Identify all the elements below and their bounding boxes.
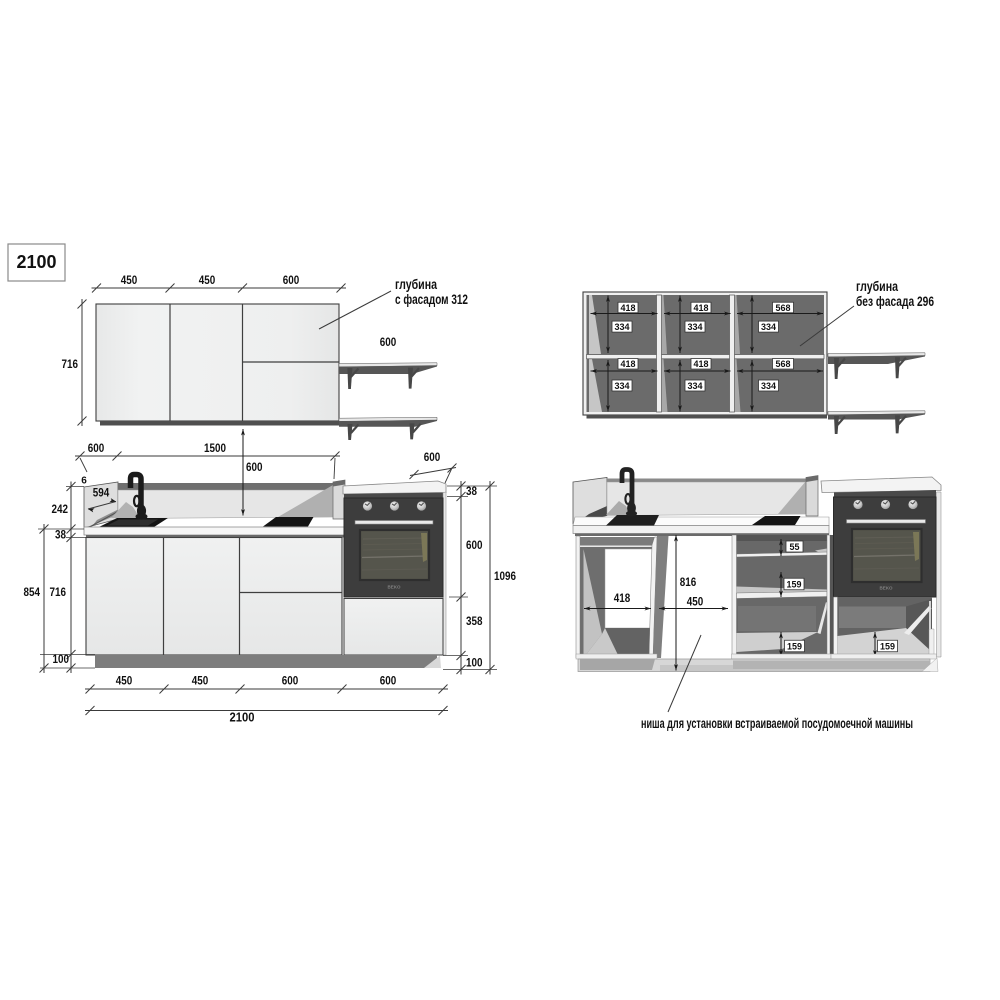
svg-text:334: 334 [688,381,704,392]
svg-text:600: 600 [380,674,397,688]
svg-text:450: 450 [116,674,133,688]
svg-text:100: 100 [466,656,483,670]
svg-text:594: 594 [93,486,110,500]
svg-text:ниша для установки встраиваемо: ниша для установки встраиваемой посудомо… [641,716,913,731]
svg-text:600: 600 [282,674,299,688]
svg-text:334: 334 [761,322,777,333]
svg-text:600: 600 [246,460,263,474]
svg-text:568: 568 [776,359,791,370]
svg-text:334: 334 [615,322,631,333]
svg-text:418: 418 [621,303,636,314]
svg-text:55: 55 [790,542,801,553]
svg-text:38: 38 [466,484,477,498]
svg-text:334: 334 [688,322,704,333]
svg-text:100: 100 [53,652,70,666]
svg-text:2100: 2100 [230,711,255,725]
svg-text:418: 418 [621,359,636,370]
svg-text:600: 600 [424,450,441,464]
svg-text:418: 418 [694,359,709,370]
svg-text:450: 450 [121,273,138,287]
svg-text:600: 600 [88,441,105,455]
svg-text:600: 600 [466,538,483,552]
svg-text:450: 450 [192,674,209,688]
svg-text:358: 358 [466,614,483,628]
svg-text:2100: 2100 [17,251,57,272]
svg-text:716: 716 [50,585,67,599]
svg-text:418: 418 [694,303,709,314]
svg-text:159: 159 [787,641,802,652]
svg-text:334: 334 [615,381,631,392]
svg-text:6: 6 [81,476,87,487]
svg-text:568: 568 [776,303,791,314]
svg-text:600: 600 [380,335,397,349]
svg-text:38: 38 [55,528,66,542]
svg-text:без фасада 296: без фасада 296 [856,294,934,309]
svg-text:BEKO: BEKO [879,586,893,591]
svg-text:450: 450 [199,273,216,287]
svg-text:418: 418 [614,591,631,605]
svg-text:глубина: глубина [856,279,898,294]
svg-text:159: 159 [787,579,802,590]
svg-text:1096: 1096 [494,569,516,583]
svg-text:600: 600 [283,273,300,287]
svg-text:159: 159 [880,641,895,652]
svg-text:с фасадом 312: с фасадом 312 [395,292,468,307]
svg-text:глубина: глубина [395,277,437,292]
svg-text:1500: 1500 [204,441,226,455]
svg-text:716: 716 [62,357,79,371]
svg-text:334: 334 [761,381,777,392]
svg-text:242: 242 [52,502,69,516]
svg-text:BEKO: BEKO [387,585,401,590]
svg-text:450: 450 [687,595,704,609]
svg-text:816: 816 [680,575,697,589]
svg-text:854: 854 [24,585,41,599]
